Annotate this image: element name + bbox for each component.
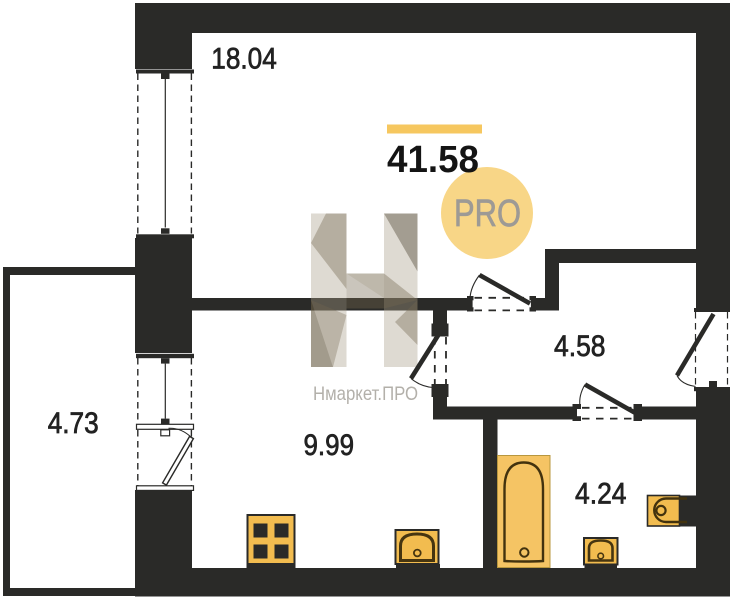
svg-text:PRO: PRO	[454, 193, 521, 235]
svg-text:4.58: 4.58	[554, 330, 606, 363]
svg-text:9.99: 9.99	[304, 429, 355, 462]
svg-text:18.04: 18.04	[211, 43, 276, 76]
svg-text:Нмаркет.ПРО: Нмаркет.ПРО	[313, 383, 418, 405]
svg-text:4.24: 4.24	[575, 478, 627, 511]
svg-text:41.58: 41.58	[387, 139, 479, 181]
svg-text:4.73: 4.73	[48, 407, 99, 440]
